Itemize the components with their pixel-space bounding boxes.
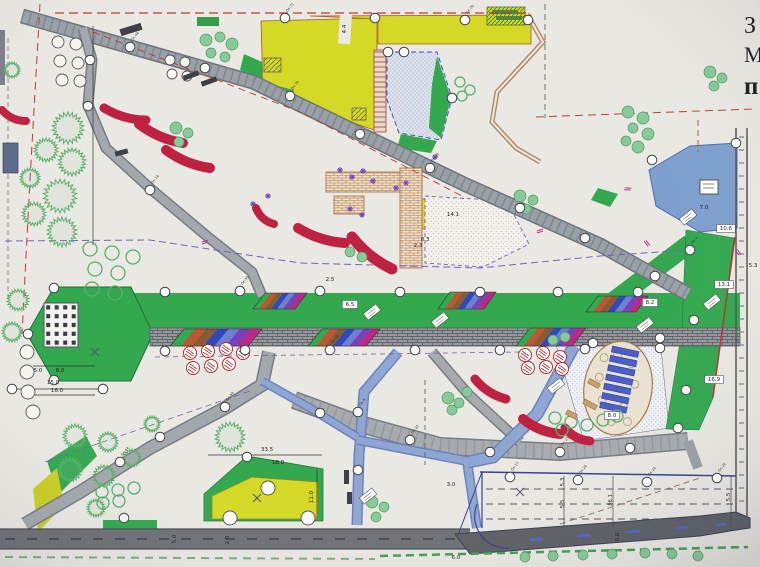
margin-letter-1: З	[744, 14, 756, 38]
site-plan-canvas: Ок-44Ок-70Ок-26Ок-71Ок-70Ок-59Ок-44Ок-14…	[0, 0, 760, 567]
site-plan-photo: Ок-44Ок-70Ок-26Ок-71Ок-70Ок-59Ок-44Ок-14…	[0, 0, 760, 567]
margin-letter-2: М	[744, 44, 760, 66]
photo-vignette	[0, 0, 760, 567]
photo-effect-layer	[0, 0, 760, 567]
margin-letter-3: п	[744, 74, 758, 99]
